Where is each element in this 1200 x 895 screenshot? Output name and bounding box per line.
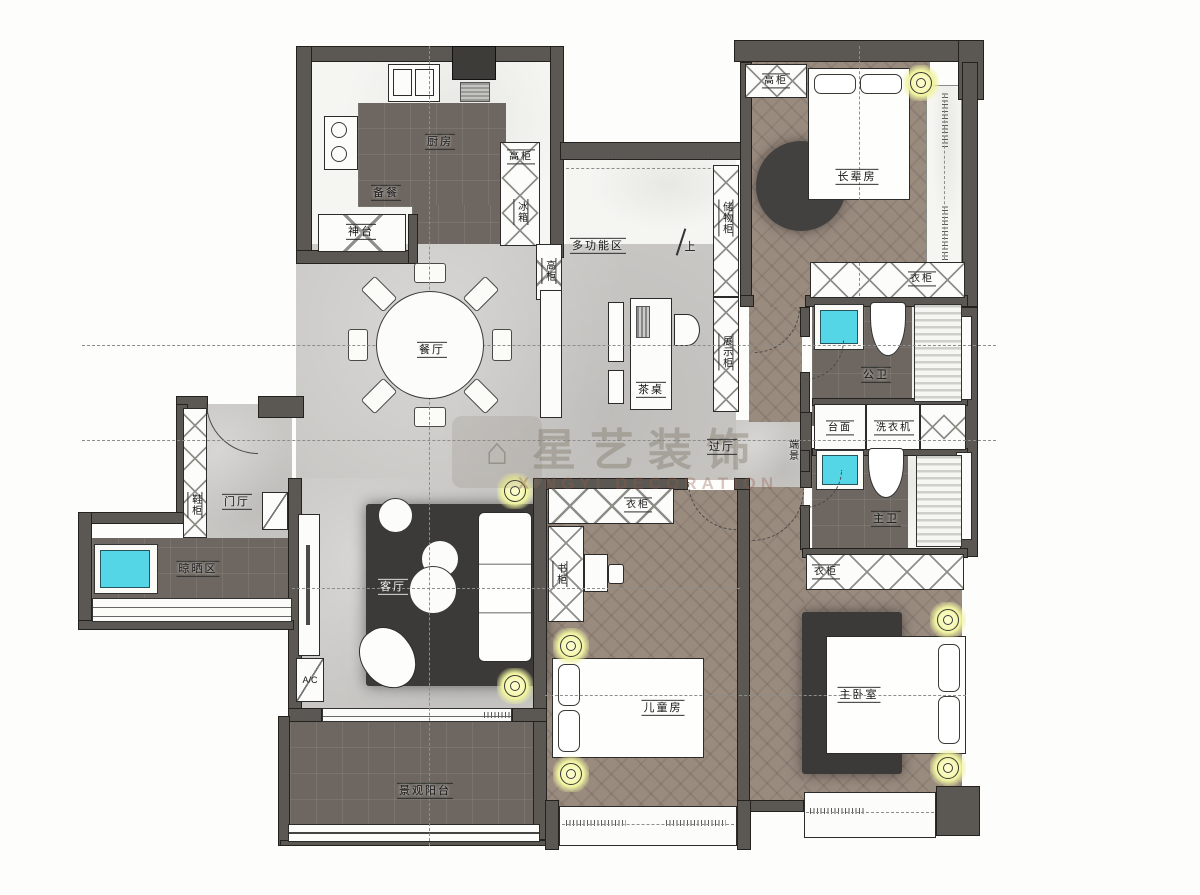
- laundry-side-cabinet: [920, 404, 966, 450]
- label-foyer: 门厅: [222, 494, 252, 510]
- label-living: 客厅: [378, 579, 408, 595]
- label-shoe-cabinet: 鞋柜: [187, 492, 202, 518]
- axis-line: [82, 345, 996, 346]
- curtain-icon: [294, 712, 320, 718]
- tea-bench: [608, 370, 624, 404]
- window-line: [566, 168, 736, 169]
- label-master-bath: 主卫: [871, 511, 901, 527]
- wall: [545, 800, 559, 850]
- sofa: [478, 512, 532, 662]
- wall: [78, 512, 188, 524]
- wall: [78, 512, 92, 630]
- balcony-window-frame: [288, 824, 540, 842]
- ceiling-light: [930, 750, 966, 786]
- window-line: [806, 812, 934, 813]
- coffee-table: [409, 566, 457, 614]
- curtain-icon: [942, 92, 948, 147]
- label-public-bath: 公卫: [861, 367, 891, 383]
- label-dining-tall-cabinet: 高柜: [541, 258, 556, 284]
- label-hallway: 过厅: [707, 439, 737, 455]
- curtain-icon: [566, 153, 636, 159]
- label-elder-room: 长辈房: [836, 169, 879, 185]
- multifunction-baywindow: [566, 160, 736, 244]
- label-kitchen-tall-cabinet: 高柜: [507, 149, 535, 164]
- kitchen-island-floor2: [412, 205, 506, 249]
- label-multifunction: 多功能区: [570, 238, 626, 254]
- decor-cabinet: [540, 290, 562, 418]
- public-bath-sink: [820, 310, 858, 344]
- drying-rail: [92, 598, 292, 622]
- tea-table-runner: [636, 306, 650, 338]
- label-master-room: 主卧室: [838, 687, 881, 703]
- label-ac: A/C: [300, 674, 319, 686]
- window-line: [562, 824, 734, 825]
- label-elder-wardrobe: 衣柜: [908, 271, 936, 286]
- wall: [740, 62, 752, 307]
- pillow: [938, 696, 960, 744]
- label-bookcase: 书柜: [552, 561, 567, 587]
- label-counter: 台面: [826, 420, 854, 435]
- wall: [800, 307, 810, 337]
- wall: [737, 478, 750, 810]
- label-kids-room: 儿童房: [642, 700, 685, 716]
- axis-line: [429, 46, 430, 846]
- floor-plan: ⌂ 星艺装饰 XINGYI DECORATION 厨房 高柜 冰箱 备餐 神台 …: [0, 0, 1200, 895]
- wall: [800, 450, 810, 472]
- ceiling-light: [553, 756, 589, 792]
- pillow: [558, 664, 580, 706]
- side-table: [378, 498, 413, 533]
- pillow: [558, 710, 580, 752]
- label-storage-cabinet: 储物柜: [718, 200, 733, 237]
- label-tea-table: 茶桌: [636, 382, 666, 398]
- label-balcony: 景观阳台: [397, 783, 453, 799]
- tv: [306, 545, 310, 625]
- stove-burner: [331, 146, 347, 162]
- ceiling-light: [553, 628, 589, 664]
- ceiling-light: [497, 668, 533, 704]
- wall: [296, 250, 418, 264]
- label-elder-tall-cabinet: 高柜: [762, 73, 790, 88]
- axis-line: [545, 695, 966, 696]
- window-line: [944, 95, 945, 265]
- label-drying-area: 晾晒区: [177, 561, 220, 577]
- ceiling-light: [903, 65, 939, 101]
- kids-desk: [584, 554, 608, 592]
- kids-desk-chair: [608, 564, 624, 584]
- label-prep: 备餐: [371, 185, 401, 201]
- wall: [734, 40, 970, 62]
- master-baywindow: [804, 792, 936, 838]
- ceiling-light: [930, 602, 966, 638]
- pillow: [938, 644, 960, 692]
- public-bath-shower: [914, 304, 962, 402]
- wall: [936, 786, 980, 836]
- label-fridge: 冰箱: [513, 199, 528, 225]
- label-kids-wardrobe: 衣柜: [624, 497, 652, 512]
- label-altar: 神台: [346, 224, 376, 240]
- wall: [740, 295, 754, 307]
- curtain-icon: [484, 712, 510, 718]
- wall: [750, 800, 804, 812]
- dining-chair: [414, 407, 446, 427]
- curtain-icon: [666, 820, 726, 826]
- label-master-wardrobe: 衣柜: [812, 564, 840, 579]
- wall: [737, 800, 751, 850]
- curtain-icon: [662, 153, 732, 159]
- kitchen-hood: [460, 82, 490, 102]
- curtain-icon: [810, 808, 865, 814]
- elder-wardrobe: [810, 262, 965, 298]
- drying-sink: [100, 550, 150, 588]
- kitchen-sink-basin: [393, 69, 412, 96]
- stove-burner: [331, 122, 347, 138]
- kids-baywindow: [559, 806, 737, 846]
- wall: [258, 396, 304, 418]
- label-display-cabinet: 展示柜: [718, 334, 733, 371]
- master-bath-shower: [916, 455, 962, 547]
- curtain-icon: [942, 205, 948, 260]
- label-washer: 洗衣机: [874, 420, 914, 435]
- balcony-floor: [290, 722, 546, 826]
- dining-chair: [414, 263, 446, 283]
- tea-chair: [674, 314, 700, 346]
- kitchen-appliance: [452, 46, 496, 80]
- wall: [408, 214, 418, 264]
- wall: [296, 46, 312, 252]
- wall: [533, 478, 547, 718]
- label-dining: 餐厅: [417, 342, 447, 358]
- shoe-cabinet: [183, 408, 207, 538]
- kitchen-sink-basin: [415, 69, 434, 96]
- curtain-icon: [566, 820, 626, 826]
- label-up: 上: [683, 240, 700, 254]
- axis-line: [292, 588, 740, 589]
- foyer-cabinet: [262, 492, 288, 530]
- label-kitchen: 厨房: [425, 134, 455, 150]
- wall: [800, 505, 810, 550]
- label-end-view: 端景: [785, 437, 798, 463]
- wall: [512, 708, 547, 722]
- tea-bench: [608, 302, 624, 362]
- pillow: [814, 74, 856, 94]
- watermark-subtitle: XINGYI DECORATION: [518, 474, 778, 494]
- pillow: [860, 74, 902, 94]
